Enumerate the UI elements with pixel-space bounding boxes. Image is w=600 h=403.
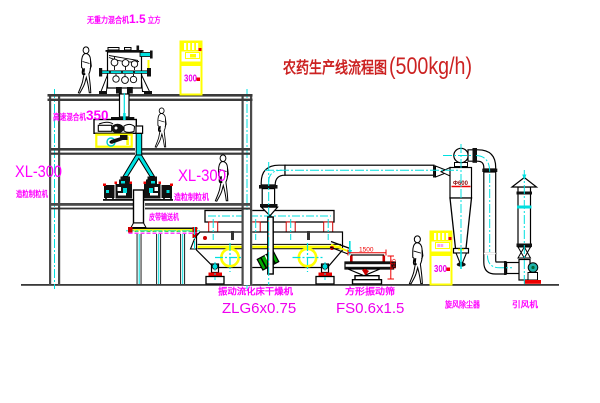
svg-text:300: 300	[434, 264, 447, 275]
svg-text:造粒制粒机: 造粒制粒机	[174, 192, 209, 202]
svg-text:XL-300: XL-300	[178, 166, 226, 185]
svg-text:无重力混合机1.5立方: 无重力混合机1.5立方	[86, 12, 161, 26]
svg-text:≡≡: ≡≡	[437, 244, 443, 250]
svg-text:引风机: 引风机	[512, 300, 538, 310]
svg-text:(500kg/h): (500kg/h)	[389, 53, 472, 80]
svg-text:旋风除尘器: 旋风除尘器	[444, 300, 480, 310]
svg-text:1500: 1500	[359, 247, 374, 254]
svg-text:振动流化床干燥机: 振动流化床干燥机	[218, 286, 293, 297]
svg-text:XL-300: XL-300	[15, 162, 62, 181]
svg-text:300: 300	[184, 74, 197, 85]
svg-text:高速混合机350: 高速混合机350	[53, 108, 109, 123]
svg-text:方形振动筛: 方形振动筛	[345, 286, 395, 297]
svg-text:皮带输送机: 皮带输送机	[148, 212, 179, 222]
svg-text:ZLG6x0.75: ZLG6x0.75	[222, 300, 296, 317]
svg-text:FS0.6x1.5: FS0.6x1.5	[336, 300, 404, 317]
svg-text:农药生产线流程图: 农药生产线流程图	[282, 58, 387, 77]
svg-text:造粒制粒机: 造粒制粒机	[16, 189, 48, 199]
svg-text:545: 545	[391, 258, 398, 269]
